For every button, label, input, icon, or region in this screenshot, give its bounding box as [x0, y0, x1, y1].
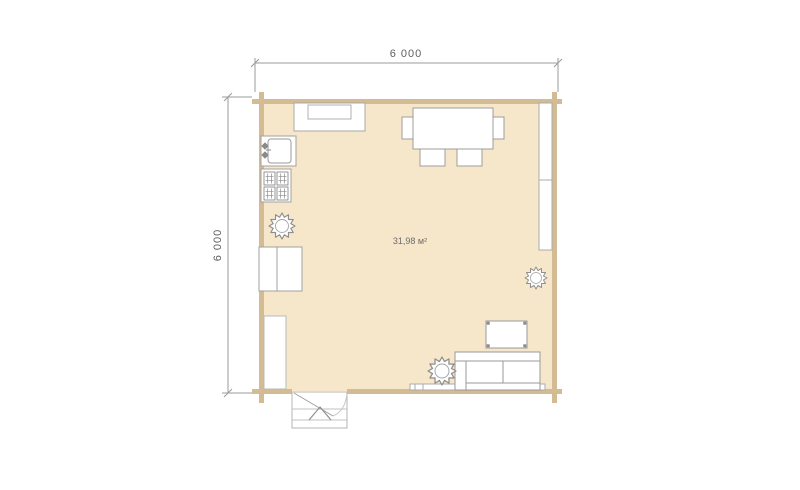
chair-right	[493, 117, 504, 139]
chair-bottom-1	[420, 148, 445, 166]
chair-left	[402, 117, 413, 139]
chair-bottom-2	[457, 148, 482, 166]
tall-cabinet	[264, 316, 286, 389]
stove-burner-3	[264, 187, 275, 200]
entrance	[292, 392, 347, 428]
dining-table	[413, 108, 493, 149]
window-left	[259, 247, 302, 291]
sink-basin	[268, 139, 291, 163]
dimension-top	[251, 58, 562, 92]
floor-plan-page: 6 000 6 000 31,98 м²	[0, 0, 800, 490]
dimension-top-label: 6 000	[390, 48, 423, 60]
entrance-porch	[292, 392, 347, 428]
dimension-left-label: 6 000	[212, 229, 224, 262]
sofa	[455, 352, 540, 390]
coffee-table	[486, 321, 527, 348]
wall-bottom-left	[252, 389, 292, 394]
floor-plan-drawing: 6 000 6 000 31,98 м²	[0, 0, 800, 490]
wall-right	[552, 92, 557, 403]
stove-burner-2	[277, 172, 288, 185]
room-area-label: 31,98 м²	[393, 236, 427, 246]
dimension-left	[222, 93, 252, 397]
stove-burner-1	[264, 172, 275, 185]
kitchen-counter-inset	[308, 105, 351, 119]
window-right	[539, 103, 552, 250]
stove-burner-4	[277, 187, 288, 200]
